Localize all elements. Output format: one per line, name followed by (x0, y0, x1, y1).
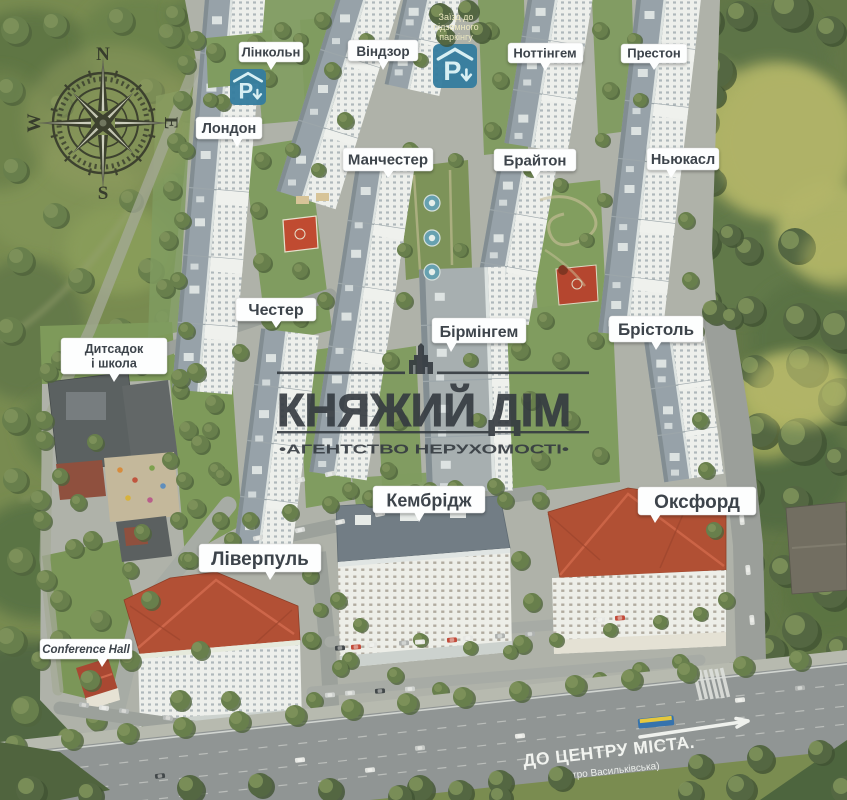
svg-text:Дитсадок: Дитсадок (85, 342, 144, 356)
svg-text:Ньюкасл: Ньюкасл (651, 152, 715, 168)
svg-text:Ліверпуль: Ліверпуль (211, 549, 309, 570)
svg-text:КНЯЖИЙ ДІМ: КНЯЖИЙ ДІМ (277, 384, 571, 436)
svg-text:і школа: і школа (91, 357, 138, 371)
svg-text:Престон: Престон (627, 46, 681, 61)
svg-text:Бірмінгем: Бірмінгем (440, 324, 519, 341)
svg-text:Честер: Честер (248, 302, 304, 319)
svg-text:Оксфорд: Оксфорд (654, 492, 740, 513)
svg-text:Кембрідж: Кембрідж (386, 491, 471, 511)
svg-text:Брайтон: Брайтон (504, 152, 567, 169)
svg-text:Conference Hall: Conference Hall (42, 644, 130, 656)
svg-text:Брістоль: Брістоль (618, 320, 694, 339)
svg-text:Віндзор: Віндзор (356, 44, 409, 59)
svg-text:Ноттінгем: Ноттінгем (513, 46, 576, 61)
svg-text:Лінкольн: Лінкольн (242, 45, 301, 60)
svg-text:Манчестер: Манчестер (348, 151, 428, 168)
svg-text:•АГЕНТСТВО НЕРУХОМОСТІ•: •АГЕНТСТВО НЕРУХОМОСТІ• (279, 442, 570, 457)
svg-text:Лондон: Лондон (202, 121, 257, 137)
